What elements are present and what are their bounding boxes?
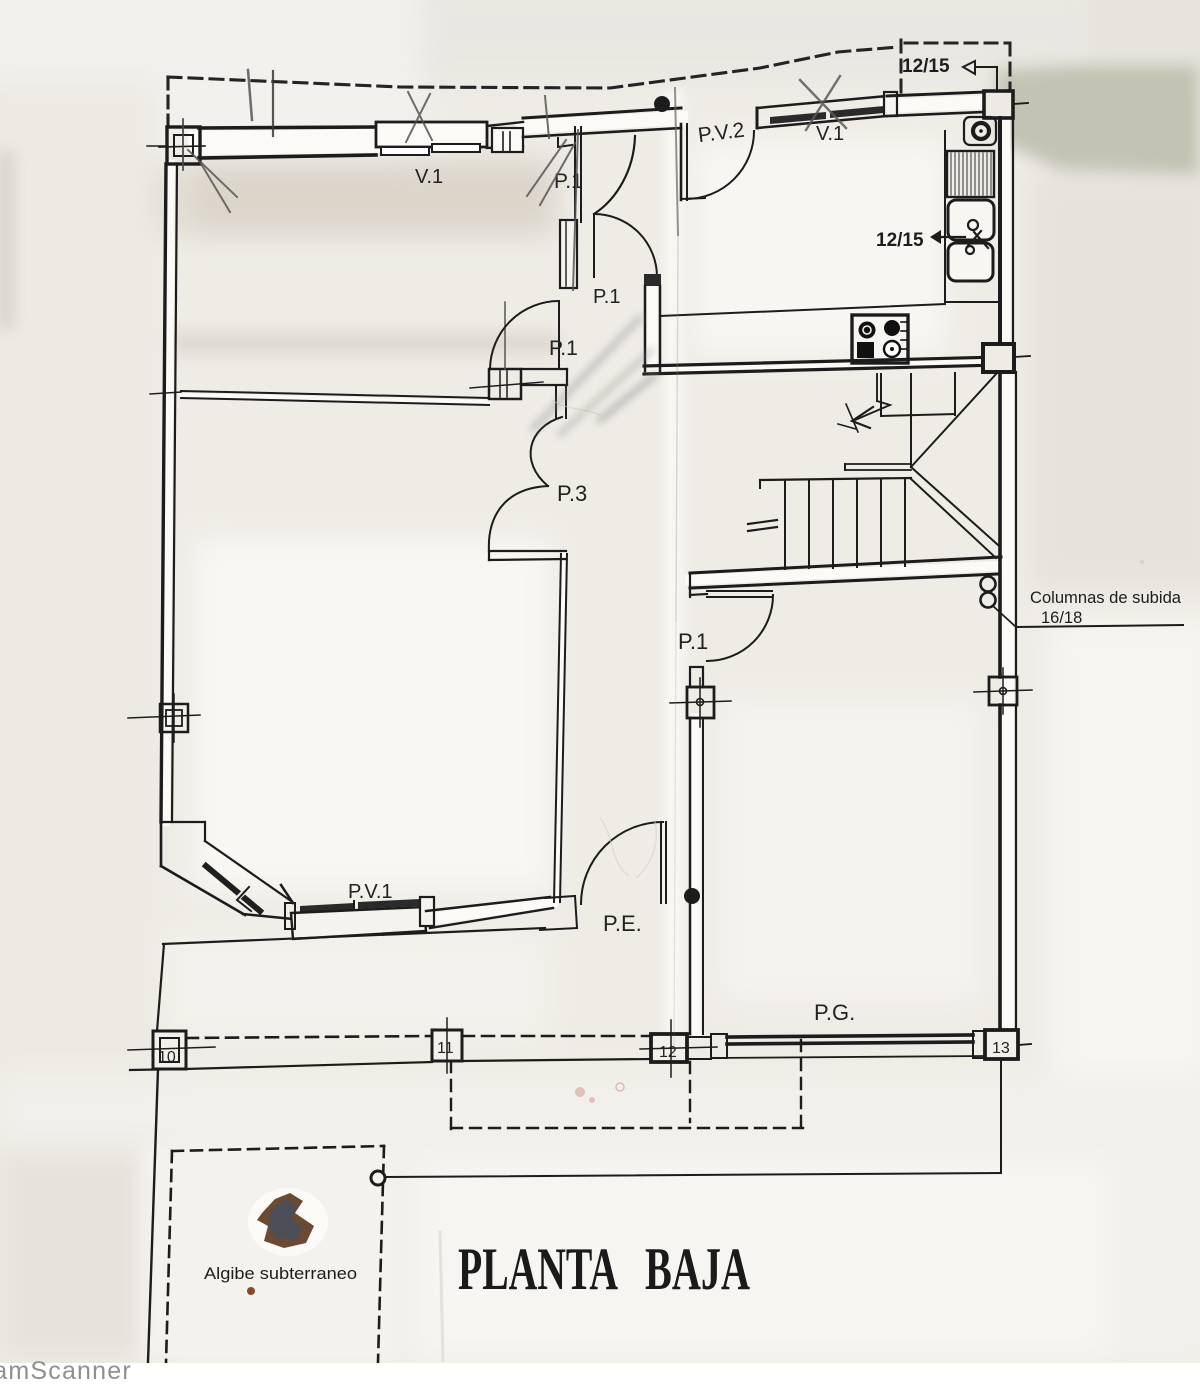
svg-text:P.3: P.3 xyxy=(557,481,587,506)
svg-text:P.1: P.1 xyxy=(549,337,578,360)
svg-text:V.1: V.1 xyxy=(816,123,844,145)
svg-text:PLANTA: PLANTA xyxy=(458,1236,618,1302)
svg-text:12/15: 12/15 xyxy=(902,56,950,77)
svg-text:13: 13 xyxy=(992,1040,1010,1057)
svg-text:12/15: 12/15 xyxy=(876,230,924,251)
svg-text:10: 10 xyxy=(158,1049,176,1066)
svg-text:Algibe subterraneo: Algibe subterraneo xyxy=(204,1264,357,1283)
svg-text:11: 11 xyxy=(437,1040,454,1057)
svg-text:P.G.: P.G. xyxy=(814,1000,855,1025)
svg-text:16/18: 16/18 xyxy=(1041,609,1082,627)
svg-text:BAJA: BAJA xyxy=(645,1236,750,1302)
svg-text:P.E.: P.E. xyxy=(603,911,642,936)
svg-text:P.1: P.1 xyxy=(678,629,708,654)
svg-text:Columnas de subida: Columnas de subida xyxy=(1030,589,1182,607)
svg-text:V.1: V.1 xyxy=(415,166,443,188)
svg-text:P.1: P.1 xyxy=(593,286,620,308)
svg-text:CamScanner: CamScanner xyxy=(0,1357,132,1385)
svg-text:P.V.1: P.V.1 xyxy=(348,881,393,903)
